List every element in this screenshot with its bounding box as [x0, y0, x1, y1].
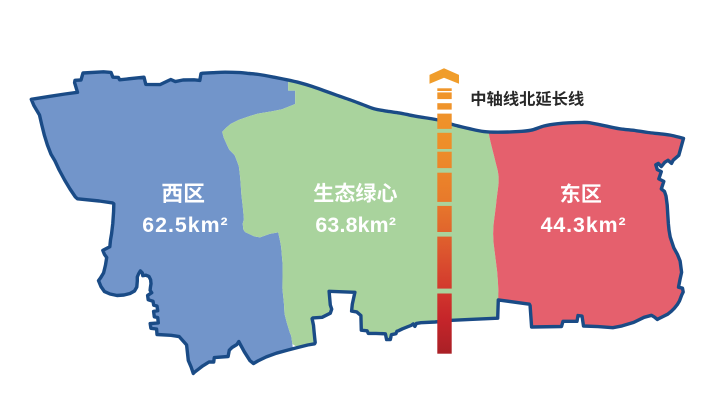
svg-text:63.8km²: 63.8km² [315, 213, 396, 237]
svg-text:44.3km²: 44.3km² [541, 213, 627, 237]
svg-text:62.5km²: 62.5km² [142, 213, 228, 237]
